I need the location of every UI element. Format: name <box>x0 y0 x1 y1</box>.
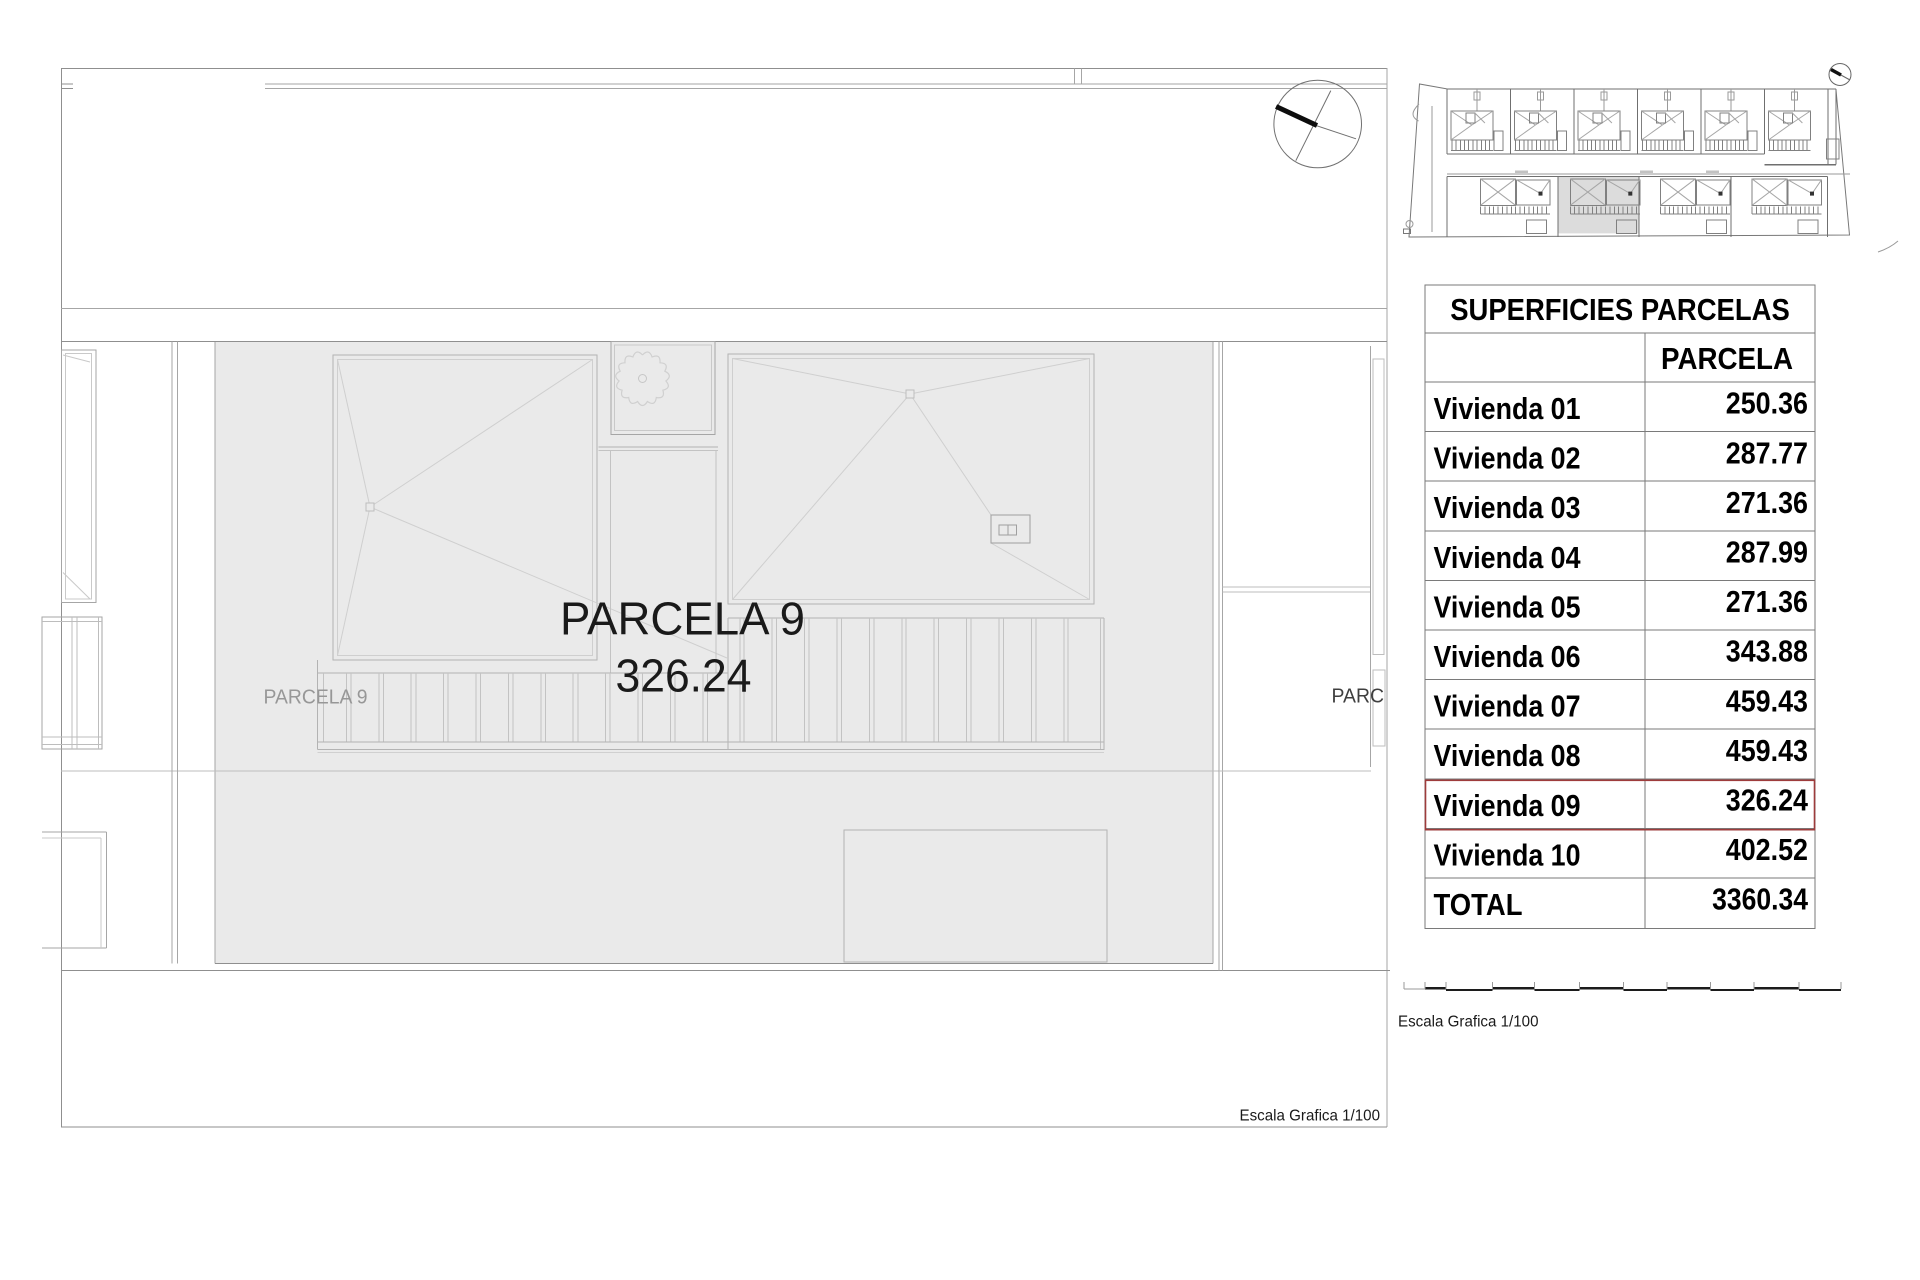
svg-text:PARCELA 9: PARCELA 9 <box>560 593 805 645</box>
svg-text:Vivienda 01: Vivienda 01 <box>1434 392 1581 426</box>
svg-text:Vivienda 05: Vivienda 05 <box>1434 590 1581 624</box>
svg-text:271.36: 271.36 <box>1726 585 1808 619</box>
svg-text:PARCELA 9: PARCELA 9 <box>264 686 368 709</box>
svg-text:Escala Grafica 1/100: Escala Grafica 1/100 <box>1398 1014 1539 1031</box>
svg-text:SUPERFICIES PARCELAS: SUPERFICIES PARCELAS <box>1450 293 1790 327</box>
svg-text:287.77: 287.77 <box>1726 436 1808 470</box>
svg-text:326.24: 326.24 <box>616 650 752 702</box>
svg-text:Vivienda 10: Vivienda 10 <box>1434 838 1581 872</box>
svg-text:326.24: 326.24 <box>1726 784 1808 818</box>
svg-text:Escala Grafica 1/100: Escala Grafica 1/100 <box>1240 1108 1381 1125</box>
svg-text:250.36: 250.36 <box>1726 387 1808 421</box>
svg-text:287.99: 287.99 <box>1726 536 1808 570</box>
svg-text:402.52: 402.52 <box>1726 833 1808 867</box>
svg-text:Vivienda 08: Vivienda 08 <box>1434 739 1581 773</box>
svg-text:Vivienda 07: Vivienda 07 <box>1434 690 1581 724</box>
svg-text:TOTAL: TOTAL <box>1434 888 1523 922</box>
svg-text:Vivienda 02: Vivienda 02 <box>1434 442 1581 476</box>
svg-text:459.43: 459.43 <box>1726 684 1808 718</box>
svg-text:Vivienda 09: Vivienda 09 <box>1434 789 1581 823</box>
svg-text:PARC: PARC <box>1332 685 1385 708</box>
svg-text:Vivienda 06: Vivienda 06 <box>1434 640 1581 674</box>
svg-text:3360.34: 3360.34 <box>1712 883 1808 917</box>
svg-text:PARCELA: PARCELA <box>1661 342 1793 376</box>
svg-text:271.36: 271.36 <box>1726 486 1808 520</box>
svg-text:459.43: 459.43 <box>1726 734 1808 768</box>
svg-text:Vivienda 03: Vivienda 03 <box>1434 491 1581 525</box>
svg-text:Vivienda 04: Vivienda 04 <box>1434 541 1581 575</box>
svg-text:343.88: 343.88 <box>1726 635 1808 669</box>
